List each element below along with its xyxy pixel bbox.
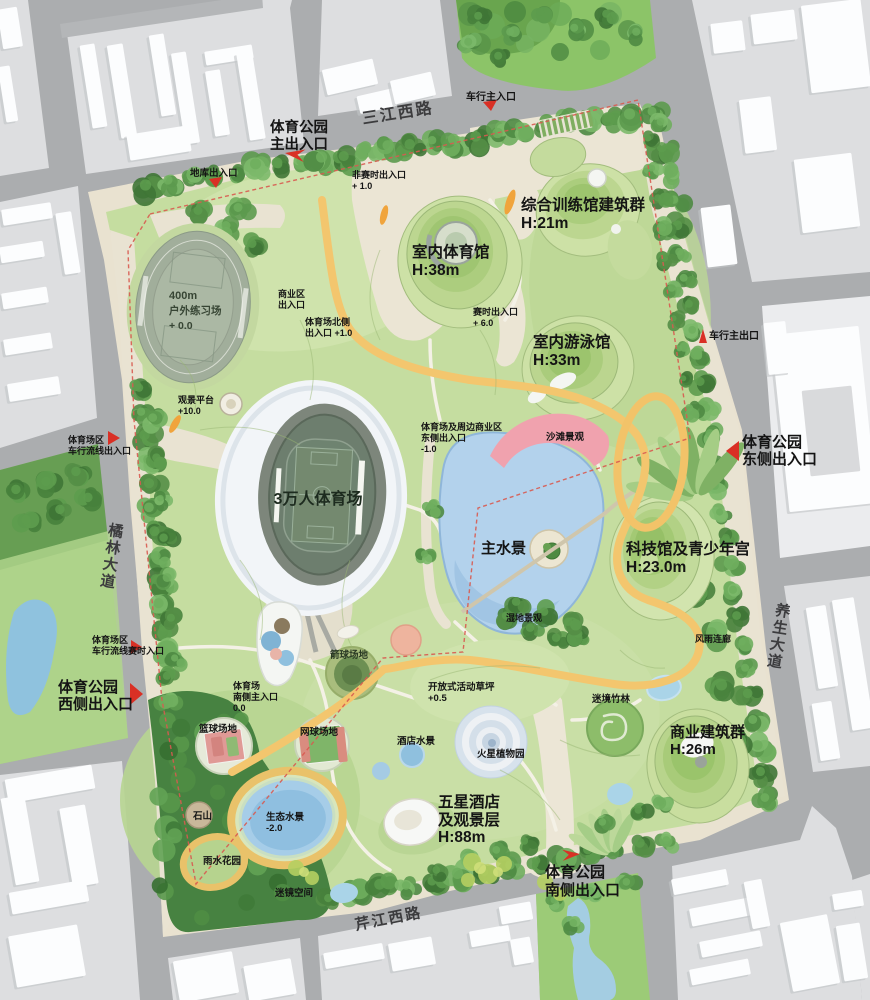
svg-text:H:23.0m: H:23.0m <box>626 559 686 576</box>
svg-text:主出入口: 主出入口 <box>270 135 328 153</box>
svg-text:车行流线出入口: 车行流线出入口 <box>68 445 131 456</box>
svg-text:400m: 400m <box>169 290 197 302</box>
svg-text:西侧出入口: 西侧出入口 <box>58 695 133 713</box>
svg-text:户外练习场: 户外练习场 <box>168 304 222 317</box>
svg-text:迷镜空间: 迷镜空间 <box>274 887 313 899</box>
svg-text:科技馆及青少年宫: 科技馆及青少年宫 <box>626 539 750 558</box>
svg-text:五星酒店: 五星酒店 <box>438 792 500 811</box>
svg-text:东侧出入口: 东侧出入口 <box>742 450 817 468</box>
svg-text:车行主入口: 车行主入口 <box>466 90 516 103</box>
svg-text:南侧主入口: 南侧主入口 <box>233 691 278 702</box>
svg-text:H:33m: H:33m <box>533 352 580 369</box>
svg-text:+10.0: +10.0 <box>178 406 201 416</box>
svg-text:出入口 +1.0: 出入口 +1.0 <box>305 327 352 338</box>
svg-text:体育场北侧: 体育场北侧 <box>305 316 350 327</box>
svg-text:网球场地: 网球场地 <box>300 726 339 738</box>
svg-text:南侧出入口: 南侧出入口 <box>545 881 620 899</box>
svg-text:湿地景观: 湿地景观 <box>506 612 542 623</box>
svg-text:商业建筑群: 商业建筑群 <box>670 723 745 741</box>
svg-text:石山: 石山 <box>192 810 212 822</box>
svg-text:雨水花园: 雨水花园 <box>203 855 241 867</box>
svg-text:体育场区: 体育场区 <box>68 434 104 445</box>
svg-text:+ 0.0: + 0.0 <box>169 320 193 332</box>
svg-text:迷境竹林: 迷境竹林 <box>591 693 631 705</box>
svg-text:赛时出入口: 赛时出入口 <box>472 306 518 317</box>
svg-text:室内体育馆: 室内体育馆 <box>412 242 490 261</box>
svg-text:H:88m: H:88m <box>438 829 485 846</box>
svg-text:体育场: 体育场 <box>233 680 260 691</box>
svg-text:篮球场地: 篮球场地 <box>198 723 238 735</box>
svg-text:体育场及周边商业区: 体育场及周边商业区 <box>421 421 502 432</box>
svg-text:综合训练馆建筑群: 综合训练馆建筑群 <box>521 195 646 214</box>
svg-text:3万人体育场: 3万人体育场 <box>274 489 363 508</box>
svg-text:地库出入口: 地库出入口 <box>190 167 238 179</box>
svg-text:风雨连廊: 风雨连廊 <box>695 633 731 644</box>
svg-text:H:21m: H:21m <box>521 215 568 232</box>
svg-text:室内游泳馆: 室内游泳馆 <box>533 332 611 351</box>
svg-text:东侧出入口: 东侧出入口 <box>421 432 466 443</box>
svg-text:体育公园: 体育公园 <box>270 118 328 136</box>
svg-text:及观景层: 及观景层 <box>438 811 500 829</box>
svg-text:+ 1.0: + 1.0 <box>352 181 372 191</box>
svg-text:体育场区: 体育场区 <box>92 634 128 645</box>
svg-text:出入口: 出入口 <box>278 299 305 310</box>
svg-text:0.0: 0.0 <box>233 703 246 713</box>
svg-text:火星植物园: 火星植物园 <box>477 748 525 760</box>
svg-text:体育公园: 体育公园 <box>545 863 605 881</box>
svg-text:-1.0: -1.0 <box>421 444 437 454</box>
svg-text:+0.5: +0.5 <box>428 693 447 704</box>
svg-text:生态水景: 生态水景 <box>266 811 305 823</box>
svg-text:车行主出口: 车行主出口 <box>709 329 759 342</box>
svg-text:开放式活动草坪: 开放式活动草坪 <box>428 681 495 693</box>
svg-text:H:26m: H:26m <box>670 741 716 758</box>
svg-text:主水景: 主水景 <box>481 539 526 557</box>
svg-text:酒店水景: 酒店水景 <box>397 735 436 747</box>
svg-text:体育公园: 体育公园 <box>742 433 802 451</box>
svg-text:+ 6.0: + 6.0 <box>473 318 493 328</box>
svg-text:-2.0: -2.0 <box>266 823 282 834</box>
svg-text:沙滩景观: 沙滩景观 <box>546 431 585 443</box>
svg-text:体育公园: 体育公园 <box>58 678 118 696</box>
svg-text:箭球场地: 箭球场地 <box>330 649 369 661</box>
svg-text:车行流线赛时入口: 车行流线赛时入口 <box>92 645 164 656</box>
svg-text:H:38m: H:38m <box>412 262 459 279</box>
svg-text:观景平台: 观景平台 <box>178 394 214 405</box>
svg-text:非赛时出入口: 非赛时出入口 <box>352 169 406 180</box>
svg-text:商业区: 商业区 <box>278 288 305 299</box>
